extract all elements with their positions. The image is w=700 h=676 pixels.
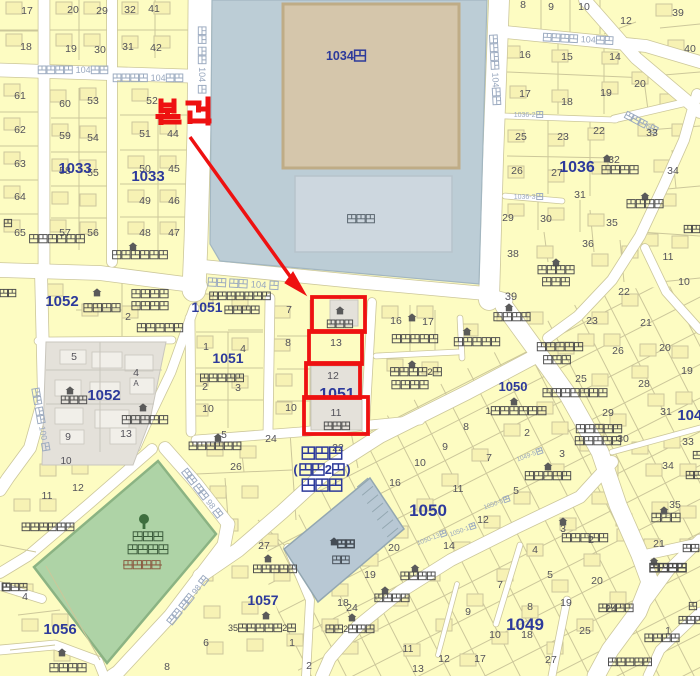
svg-text:25: 25 (515, 131, 527, 143)
svg-text:53: 53 (87, 95, 99, 107)
svg-text:9: 9 (442, 441, 448, 453)
svg-text:16: 16 (390, 315, 402, 327)
svg-text:32: 32 (124, 4, 136, 16)
svg-text:44: 44 (167, 128, 179, 140)
svg-text:20: 20 (591, 575, 603, 587)
svg-text:7: 7 (497, 579, 503, 591)
svg-text:12: 12 (72, 482, 84, 494)
svg-text:4: 4 (532, 544, 538, 556)
svg-text:104: 104 (581, 34, 597, 45)
svg-text:34: 34 (662, 460, 674, 472)
svg-text:14: 14 (609, 51, 621, 63)
svg-text:35: 35 (228, 623, 238, 633)
svg-text:23: 23 (586, 315, 598, 327)
svg-text:18: 18 (561, 96, 573, 108)
svg-text:9: 9 (65, 431, 71, 443)
svg-text:12: 12 (327, 370, 339, 382)
svg-text:6: 6 (203, 637, 209, 649)
svg-text:2: 2 (427, 367, 432, 378)
svg-text:61: 61 (14, 90, 26, 102)
svg-text:1036-2: 1036-2 (514, 112, 536, 119)
svg-text:11: 11 (453, 483, 464, 495)
svg-text:1052: 1052 (87, 387, 120, 404)
svg-text:1051: 1051 (212, 350, 243, 366)
svg-text:9: 9 (465, 606, 471, 618)
svg-text:13: 13 (120, 428, 132, 440)
svg-text:8: 8 (164, 661, 170, 673)
svg-text:19: 19 (65, 43, 77, 55)
svg-text:12: 12 (477, 514, 489, 526)
svg-text:1036: 1036 (559, 159, 595, 176)
svg-text:29: 29 (96, 5, 108, 17)
svg-text:24: 24 (346, 602, 358, 614)
svg-text:39: 39 (672, 7, 684, 19)
svg-text:1: 1 (203, 341, 209, 353)
svg-text:1036-3: 1036-3 (514, 194, 536, 201)
svg-text:64: 64 (14, 191, 26, 203)
svg-text:33: 33 (682, 436, 694, 448)
svg-text:26: 26 (230, 461, 242, 473)
svg-text:12: 12 (438, 653, 450, 665)
svg-text:24: 24 (265, 433, 277, 445)
svg-text:8: 8 (285, 337, 291, 349)
svg-text:10: 10 (202, 403, 214, 415)
svg-text:13: 13 (330, 337, 342, 349)
svg-text:20: 20 (634, 78, 646, 90)
svg-text:2: 2 (202, 381, 208, 393)
svg-text:59: 59 (59, 130, 71, 142)
svg-text:10: 10 (578, 1, 590, 13)
svg-text:19: 19 (560, 597, 572, 609)
svg-text:46: 46 (168, 195, 180, 207)
svg-text:9: 9 (548, 1, 554, 13)
svg-text:5: 5 (547, 569, 553, 581)
svg-text:104: 104 (490, 72, 501, 88)
svg-text:41: 41 (148, 3, 160, 15)
svg-text:104: 104 (76, 65, 91, 75)
svg-text:2: 2 (524, 427, 530, 439)
svg-text:3: 3 (235, 382, 241, 394)
svg-text:1049: 1049 (677, 407, 700, 424)
svg-text:8: 8 (527, 601, 533, 613)
svg-text:33: 33 (646, 127, 658, 139)
svg-text:40: 40 (684, 43, 696, 55)
svg-text:30: 30 (94, 44, 106, 56)
svg-text:1033: 1033 (58, 160, 91, 177)
svg-text:19: 19 (364, 569, 376, 581)
svg-text:18: 18 (20, 41, 32, 53)
svg-text:26: 26 (511, 165, 523, 177)
svg-text:5: 5 (71, 351, 77, 363)
svg-text:31: 31 (122, 41, 134, 53)
svg-text:25: 25 (575, 373, 587, 385)
svg-text:16: 16 (519, 49, 531, 61)
svg-text:11: 11 (663, 251, 674, 263)
svg-text:30: 30 (540, 213, 552, 225)
svg-text:19: 19 (681, 365, 693, 377)
svg-text:45: 45 (168, 163, 180, 175)
svg-text:5: 5 (221, 430, 227, 441)
svg-text:51: 51 (139, 128, 151, 140)
svg-text:62: 62 (14, 124, 26, 136)
svg-text:10: 10 (60, 456, 72, 467)
svg-text:8: 8 (463, 421, 469, 433)
svg-text:26: 26 (612, 345, 624, 357)
svg-text:7: 7 (486, 452, 492, 464)
svg-text:2: 2 (125, 311, 131, 323)
svg-text:27: 27 (258, 540, 270, 552)
svg-text:2: 2 (306, 660, 312, 672)
svg-text:56: 56 (87, 227, 99, 239)
svg-text:21: 21 (653, 538, 665, 550)
svg-text:52: 52 (146, 95, 158, 107)
svg-text:20: 20 (388, 542, 400, 554)
svg-text:35: 35 (669, 499, 681, 511)
svg-text:65: 65 (14, 227, 26, 239)
svg-text:5: 5 (513, 485, 519, 497)
svg-text:31: 31 (660, 406, 672, 418)
svg-text:1: 1 (289, 637, 295, 649)
svg-text:20: 20 (659, 342, 671, 354)
svg-text:17: 17 (21, 5, 33, 17)
svg-text:42: 42 (150, 42, 162, 54)
svg-text:14: 14 (443, 540, 455, 552)
svg-text:63: 63 (14, 158, 26, 170)
svg-text:30: 30 (617, 433, 629, 445)
svg-text:17: 17 (422, 316, 434, 328)
svg-text:31: 31 (574, 189, 586, 201)
svg-text:11: 11 (403, 643, 414, 655)
svg-text:1049: 1049 (506, 615, 544, 634)
svg-text:4: 4 (133, 367, 139, 379)
svg-text:10: 10 (678, 276, 690, 288)
svg-text:11: 11 (42, 490, 53, 502)
svg-text:13: 13 (412, 663, 424, 675)
svg-text:34: 34 (667, 165, 679, 177)
svg-text:29: 29 (502, 212, 514, 224)
svg-text:29: 29 (602, 407, 614, 419)
svg-text:3: 3 (559, 448, 565, 460)
svg-text:12: 12 (620, 15, 632, 27)
svg-text:57: 57 (59, 227, 71, 239)
svg-text:47: 47 (168, 227, 180, 239)
svg-text:28: 28 (638, 378, 650, 390)
svg-text:36: 36 (582, 238, 594, 250)
svg-text:20: 20 (67, 4, 79, 16)
svg-text:2: 2 (282, 623, 287, 633)
svg-text:48: 48 (139, 227, 151, 239)
svg-text:27: 27 (545, 654, 557, 666)
svg-text:1051: 1051 (319, 386, 355, 403)
svg-text:104: 104 (250, 279, 266, 291)
svg-text:38: 38 (507, 248, 519, 260)
svg-text:1: 1 (485, 406, 490, 417)
svg-text:10: 10 (414, 457, 426, 469)
svg-text:22: 22 (618, 286, 630, 298)
svg-text:2: 2 (343, 624, 348, 634)
svg-text:19: 19 (600, 87, 612, 99)
svg-text:39: 39 (505, 291, 517, 303)
svg-text:(: ( (293, 462, 298, 477)
svg-text:16: 16 (389, 477, 401, 489)
svg-text:4: 4 (22, 591, 28, 603)
svg-text:1056: 1056 (43, 621, 76, 638)
svg-text:11: 11 (331, 407, 342, 419)
svg-text:23: 23 (557, 131, 569, 143)
svg-text:2: 2 (325, 462, 332, 477)
svg-text:17: 17 (519, 88, 531, 100)
svg-text:35: 35 (606, 217, 618, 229)
svg-text:A: A (133, 379, 139, 388)
svg-text:60: 60 (59, 98, 71, 110)
svg-text:22: 22 (593, 125, 605, 137)
svg-text:8: 8 (520, 0, 526, 11)
svg-text:54: 54 (87, 132, 99, 144)
svg-text:10: 10 (489, 629, 501, 641)
svg-text:15: 15 (561, 51, 573, 63)
svg-text:1033: 1033 (131, 168, 164, 185)
svg-text:7: 7 (286, 304, 292, 316)
svg-text:1050: 1050 (409, 501, 447, 520)
svg-text:1050: 1050 (499, 379, 528, 394)
svg-text:25: 25 (579, 625, 591, 637)
svg-text:104: 104 (151, 73, 166, 83)
svg-text:49: 49 (139, 195, 151, 207)
svg-text:1051: 1051 (191, 299, 222, 315)
svg-text:104: 104 (197, 67, 207, 82)
svg-text:10: 10 (285, 402, 297, 414)
svg-text:17: 17 (474, 653, 486, 665)
svg-text:1034: 1034 (326, 49, 354, 63)
svg-text:21: 21 (640, 317, 652, 329)
svg-text:): ) (346, 462, 350, 477)
svg-text:1057: 1057 (247, 592, 278, 608)
svg-text:1052: 1052 (45, 293, 78, 310)
